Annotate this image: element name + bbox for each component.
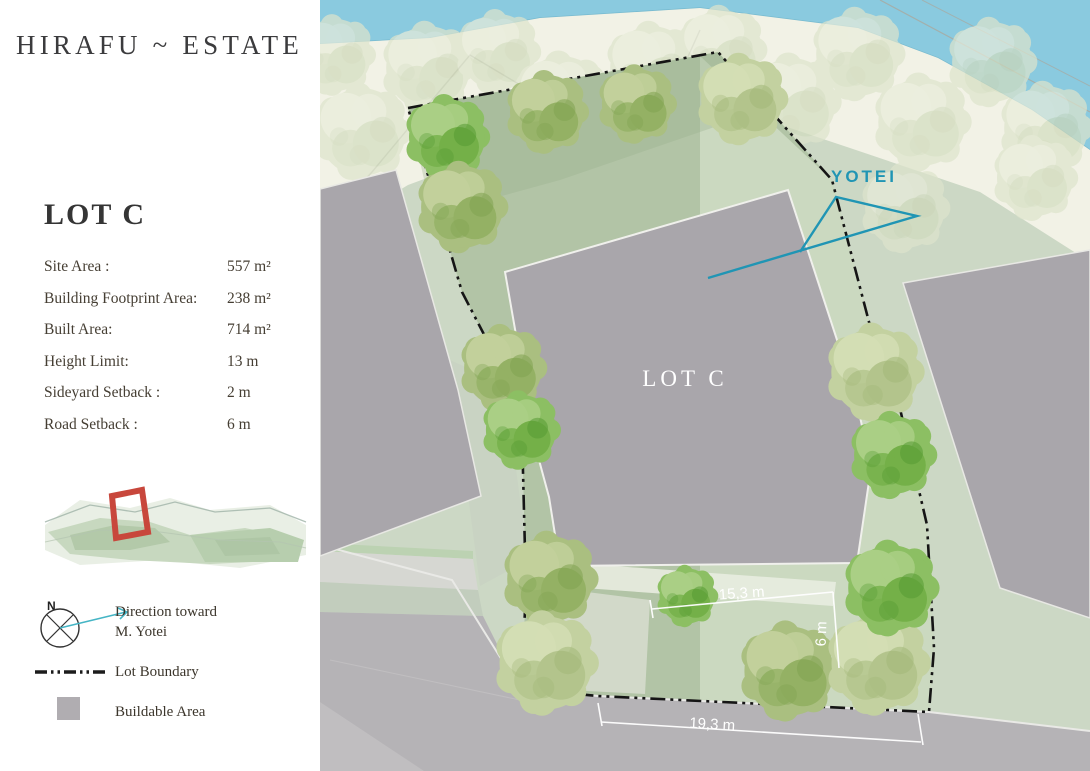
detail-value: 557 m² [227, 258, 271, 276]
site-plan-map: 15,3 m 6 m 19,3 m YOTEI LOT C [320, 0, 1090, 771]
lot-heading: LOT C [44, 198, 146, 232]
dimension-front-width: 15,3 m [718, 583, 765, 603]
location-minimap [40, 480, 312, 582]
detail-label: Height Limit: [44, 353, 129, 371]
brand-title: HIRAFU ~ ESTATE [16, 30, 303, 61]
site-plan-page: HIRAFU ~ ESTATE LOT C Site Area : 557 m²… [0, 0, 1090, 771]
lot-boundary-legend-label: Lot Boundary [115, 664, 199, 681]
yotei-label: YOTEI [831, 167, 897, 186]
dimension-road-frontage: 19,3 m [689, 715, 736, 735]
direction-legend-line2: M. Yotei [115, 624, 167, 641]
detail-row-sideyard-setback: Sideyard Setback : 2 m [44, 384, 306, 416]
map-lot-label: LOT C [642, 366, 727, 391]
buildable-area-legend-icon [57, 697, 80, 720]
lot-boundary-legend-icon [33, 666, 107, 678]
info-panel: HIRAFU ~ ESTATE LOT C Site Area : 557 m²… [0, 0, 320, 771]
direction-legend-line1: Direction toward [115, 604, 217, 621]
buildable-area-legend-label: Buildable Area [115, 704, 205, 721]
lot-details-table: Site Area : 557 m² Building Footprint Ar… [44, 258, 306, 448]
detail-value: 13 m [227, 353, 258, 371]
detail-label: Sideyard Setback : [44, 384, 160, 402]
detail-row-height-limit: Height Limit: 13 m [44, 353, 306, 385]
dimension-setback-depth: 6 m [813, 621, 831, 647]
detail-value: 6 m [227, 416, 251, 434]
detail-value: 238 m² [227, 290, 271, 308]
detail-label: Building Footprint Area: [44, 290, 197, 308]
detail-label: Road Setback : [44, 416, 138, 434]
detail-row-built-area: Built Area: 714 m² [44, 321, 306, 353]
detail-row-road-setback: Road Setback : 6 m [44, 416, 306, 448]
detail-value: 2 m [227, 384, 251, 402]
detail-row-footprint: Building Footprint Area: 238 m² [44, 290, 306, 322]
detail-label: Site Area : [44, 258, 109, 276]
detail-label: Built Area: [44, 321, 112, 339]
detail-value: 714 m² [227, 321, 271, 339]
detail-row-site-area: Site Area : 557 m² [44, 258, 306, 290]
